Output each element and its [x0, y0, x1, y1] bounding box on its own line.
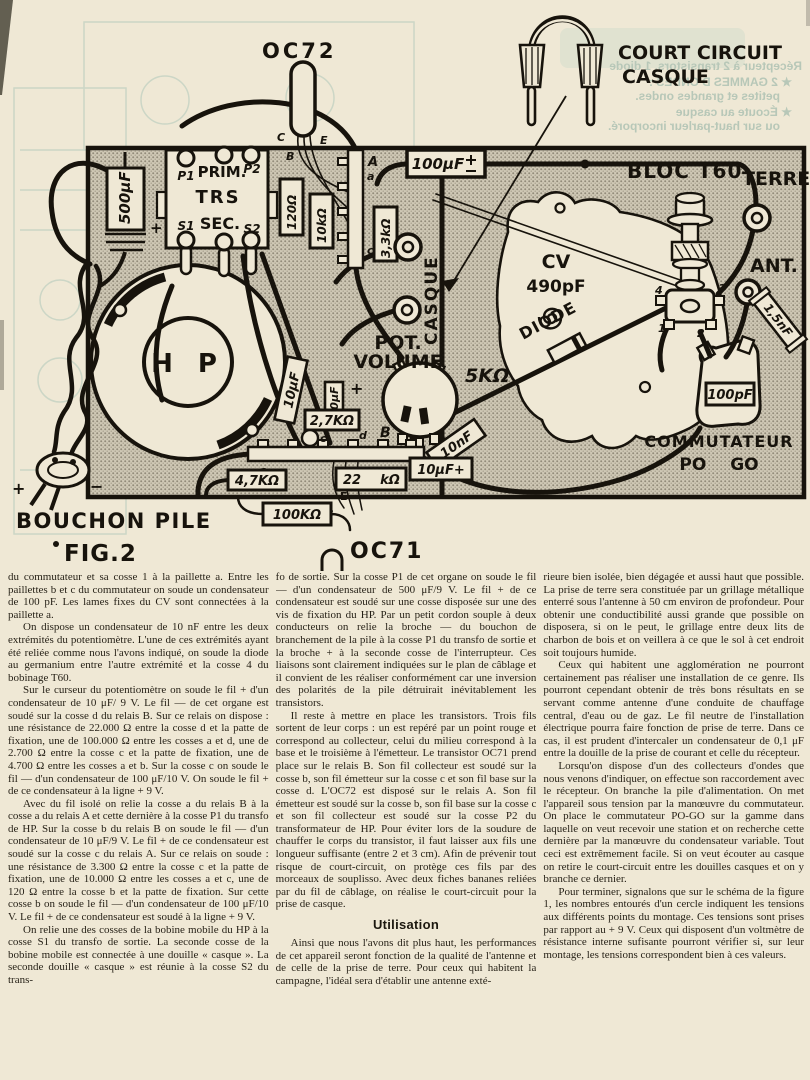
resistor-3k3ohm-value: 3,3kΩ — [379, 219, 393, 258]
resistor-4k7: 4,7KΩ — [228, 470, 286, 490]
oc72-collector-mark: C — [277, 131, 285, 144]
relais-a-label: A — [367, 155, 378, 170]
transformer-sec: SEC. — [200, 214, 240, 233]
resistor-100k-value: 100KΩ — [273, 508, 321, 523]
resistor-100k: 100KΩ — [263, 503, 331, 525]
capacitor-10uf-bottom: 10μF+ — [410, 458, 472, 480]
resistor-3k3ohm: 3,3kΩ — [374, 207, 397, 261]
oc72-base-mark: B — [286, 150, 294, 163]
plus-mark: + — [150, 219, 163, 237]
transformer-p2: P2 — [243, 162, 260, 176]
resistor-22k: 22 kΩ — [336, 468, 406, 490]
paragraph: Pour terminer, signalons que sur le sché… — [543, 886, 804, 962]
paragraph: Avec du fil isolé on relie la cosse a du… — [8, 798, 269, 924]
magazine-page: Récepteur à 2 transistors, 1 diode ★ 2 G… — [0, 0, 810, 1080]
po-go-label: PO GO — [679, 455, 758, 475]
transformer-s2: S2 — [244, 222, 261, 236]
coil-lug-3: 3 — [718, 282, 726, 295]
capacitor-100uf-top-value: 100μF — [412, 155, 465, 173]
transformer-trs: TRS — [195, 187, 240, 208]
terre-label: TERRE — [742, 168, 810, 190]
coil-lug-1: 1 — [658, 322, 666, 335]
transformer-s1: S1 — [178, 219, 195, 233]
oc71-label: OC71 — [350, 539, 423, 564]
paragraph: Ceux qui habitent une agglomération ne p… — [543, 659, 804, 760]
cosse-d-label: d — [359, 429, 367, 442]
resistor-22k-value: 22 — [343, 473, 361, 488]
paragraph: Lorsqu'on dispose d'un des collecteurs d… — [543, 760, 804, 886]
court-circuit-label-line1: COURT CIRCUIT — [618, 42, 782, 64]
ant-label: ANT. — [750, 255, 798, 277]
paragraph: On relie une des cosses de la bobine mob… — [8, 924, 269, 987]
hp-speaker: H P — [91, 265, 285, 459]
oc72-emitter-mark: E — [320, 134, 328, 147]
capacitor-100pf: 100pF — [706, 383, 754, 405]
cv-label: CV — [542, 251, 571, 273]
ghost-line: ou sur haut-parleur incorporé. — [608, 119, 780, 133]
resistor-120ohm: 120Ω — [280, 179, 303, 235]
relais-b-label: B — [380, 425, 391, 441]
resistor-4k7-value: 4,7KΩ — [234, 474, 279, 489]
bouchon-pile-caption: BOUCHON PILE — [16, 509, 212, 533]
ghost-line: ★ Écoute au casque — [676, 104, 792, 119]
resistor-2k7: 2,7KΩ — [305, 410, 359, 430]
emitter-mark: E — [340, 490, 348, 503]
plus-mark: + — [350, 379, 363, 398]
resistor-10kohm-value: 10kΩ — [315, 208, 329, 243]
paragraph: Il reste à mettre en place les transisto… — [276, 710, 537, 912]
capacitor-100uf-top: 100μF — [407, 150, 485, 177]
resistor-22k-unit: kΩ — [380, 473, 400, 488]
article-column-3: rieure bien isolée, bien dégagée et auss… — [543, 571, 804, 1078]
caption-tick-icon — [53, 541, 59, 547]
capacitor-10uf-bottom-value: 10μF+ — [417, 463, 464, 478]
minus-mark: − — [90, 477, 103, 496]
cosse-c-label: c — [320, 432, 327, 445]
section-heading-utilisation: Utilisation — [276, 917, 537, 932]
paragraph: rieure bien isolée, bien dégagée et auss… — [543, 571, 804, 659]
transistor-oc71: OC71 — [322, 539, 423, 571]
transformer-prim: PRIM. — [198, 163, 247, 181]
cv-value: 490pF — [526, 277, 585, 297]
oc72-label: OC72 — [262, 39, 337, 63]
capacitor-100pf-value: 100pF — [707, 388, 752, 403]
bloc-t60-label: BLOC T60 — [627, 159, 742, 183]
pot-label-line2: VOLUME — [353, 351, 442, 373]
casque-vertical-label: CASQUE — [422, 255, 442, 345]
capacitor-500uf-value: 500μF — [116, 171, 134, 224]
paragraph: Ainsi que nous l'avons dit plus haut, le… — [276, 937, 537, 987]
pot-value: 5KΩ — [465, 365, 509, 387]
transformer-p1: P1 — [177, 169, 194, 183]
article-column-2: fo de sortie. Sur la cosse P1 de cet org… — [276, 571, 537, 1078]
resistor-2k7-value: 2,7KΩ — [310, 414, 354, 429]
paragraph: On dispose un condensateur de 10 nF entr… — [8, 621, 269, 684]
coil-lug-2: 2 — [697, 327, 705, 340]
hp-label: H P — [151, 349, 225, 379]
figure-2-wiring-diagram: Récepteur à 2 transistors, 1 diode ★ 2 G… — [0, 0, 810, 571]
resistor-10kohm: 10kΩ — [310, 194, 333, 248]
paragraph: du commutateur et sa cosse 1 à la paille… — [8, 571, 269, 621]
resistor-120ohm-value: 120Ω — [285, 195, 299, 230]
court-circuit-label-line2: CASQUE — [622, 66, 709, 88]
paragraph: Sur le curseur du potentiomètre on soude… — [8, 684, 269, 797]
paragraph: fo de sortie. Sur la cosse P1 de cet org… — [276, 571, 537, 710]
article-columns: du commutateur et sa cosse 1 à la paille… — [8, 571, 804, 1078]
coil-lug-4: 4 — [654, 284, 663, 297]
commutateur-label: COMMUTATEUR — [644, 432, 793, 451]
article-column-1: du commutateur et sa cosse 1 à la paille… — [8, 571, 269, 1078]
plus-mark: + — [12, 479, 25, 498]
figure-caption: FIG.2 — [64, 541, 137, 567]
cosse-a-label: a — [367, 170, 374, 183]
ghost-line: petites et grandes ondes. — [635, 89, 780, 103]
